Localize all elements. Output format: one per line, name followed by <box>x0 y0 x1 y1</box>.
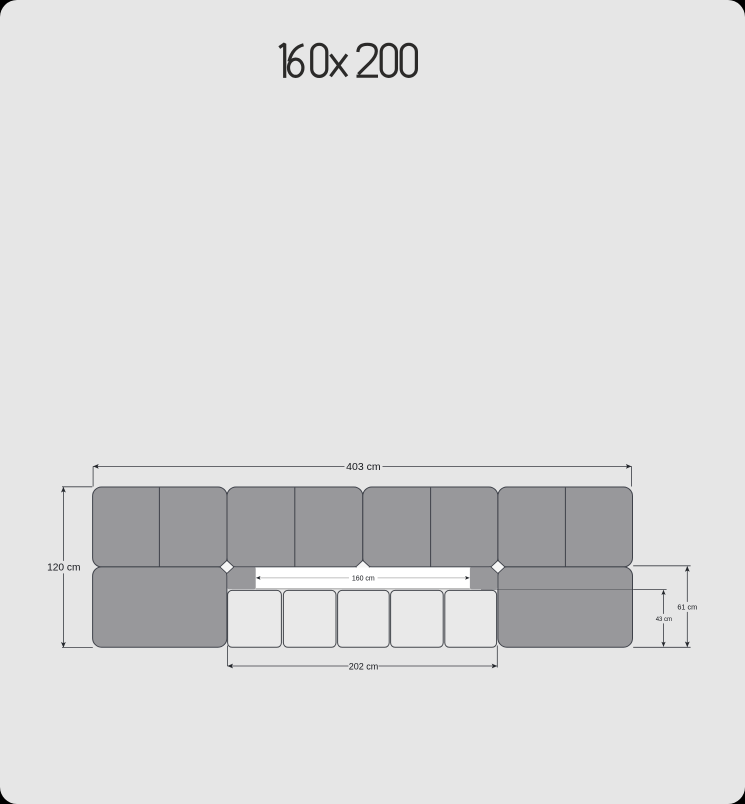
svg-text:61 cm: 61 cm <box>677 603 697 612</box>
svg-text:202 cm: 202 cm <box>349 661 379 671</box>
svg-text:160 cm: 160 cm <box>352 575 375 582</box>
svg-text:403 cm: 403 cm <box>346 461 381 473</box>
svg-text:120 cm: 120 cm <box>47 562 80 573</box>
svg-text:43 cm: 43 cm <box>656 617 672 623</box>
